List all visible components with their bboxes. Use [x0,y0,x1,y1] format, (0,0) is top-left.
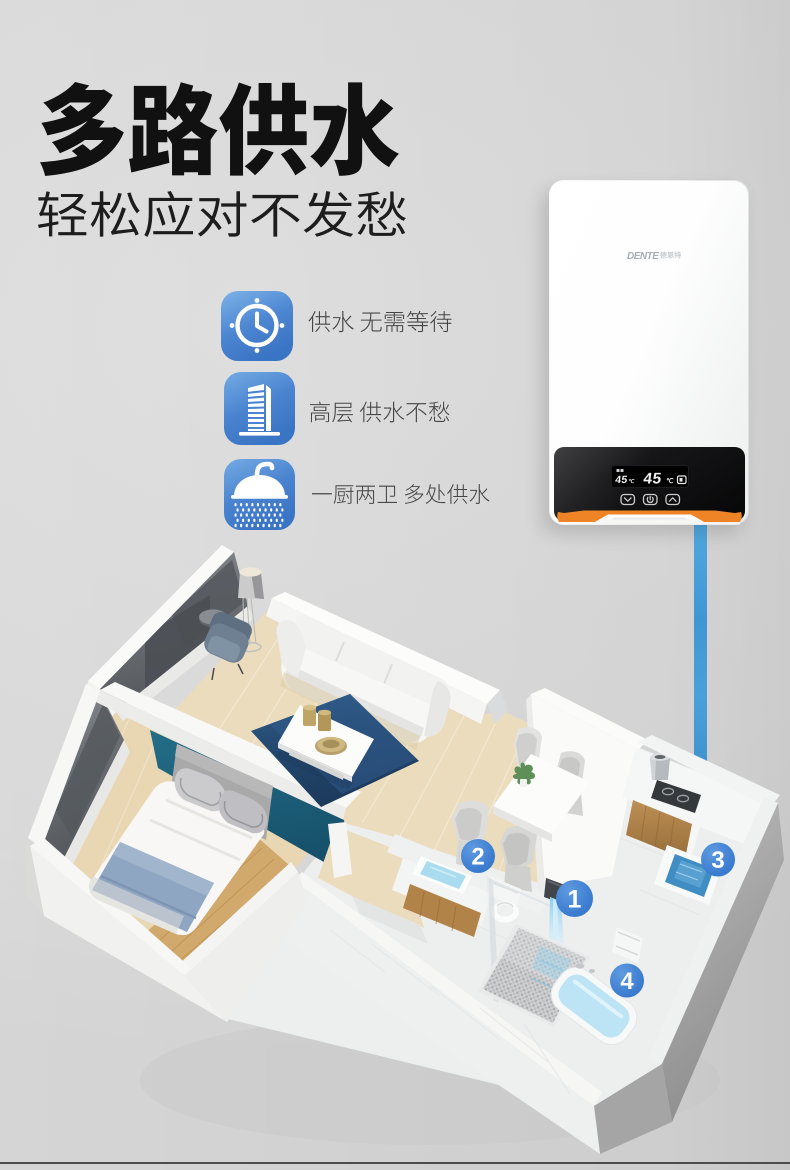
svg-text:1: 1 [568,886,582,914]
svg-text:45: 45 [642,471,662,487]
svg-text:4: 4 [620,968,634,995]
svg-text:℃: ℃ [666,477,675,485]
svg-text:DENTE: DENTE [627,251,659,262]
svg-text:45: 45 [615,474,629,486]
svg-text:2: 2 [471,844,484,871]
svg-text:3: 3 [711,847,724,874]
svg-text:℃: ℃ [628,478,635,485]
